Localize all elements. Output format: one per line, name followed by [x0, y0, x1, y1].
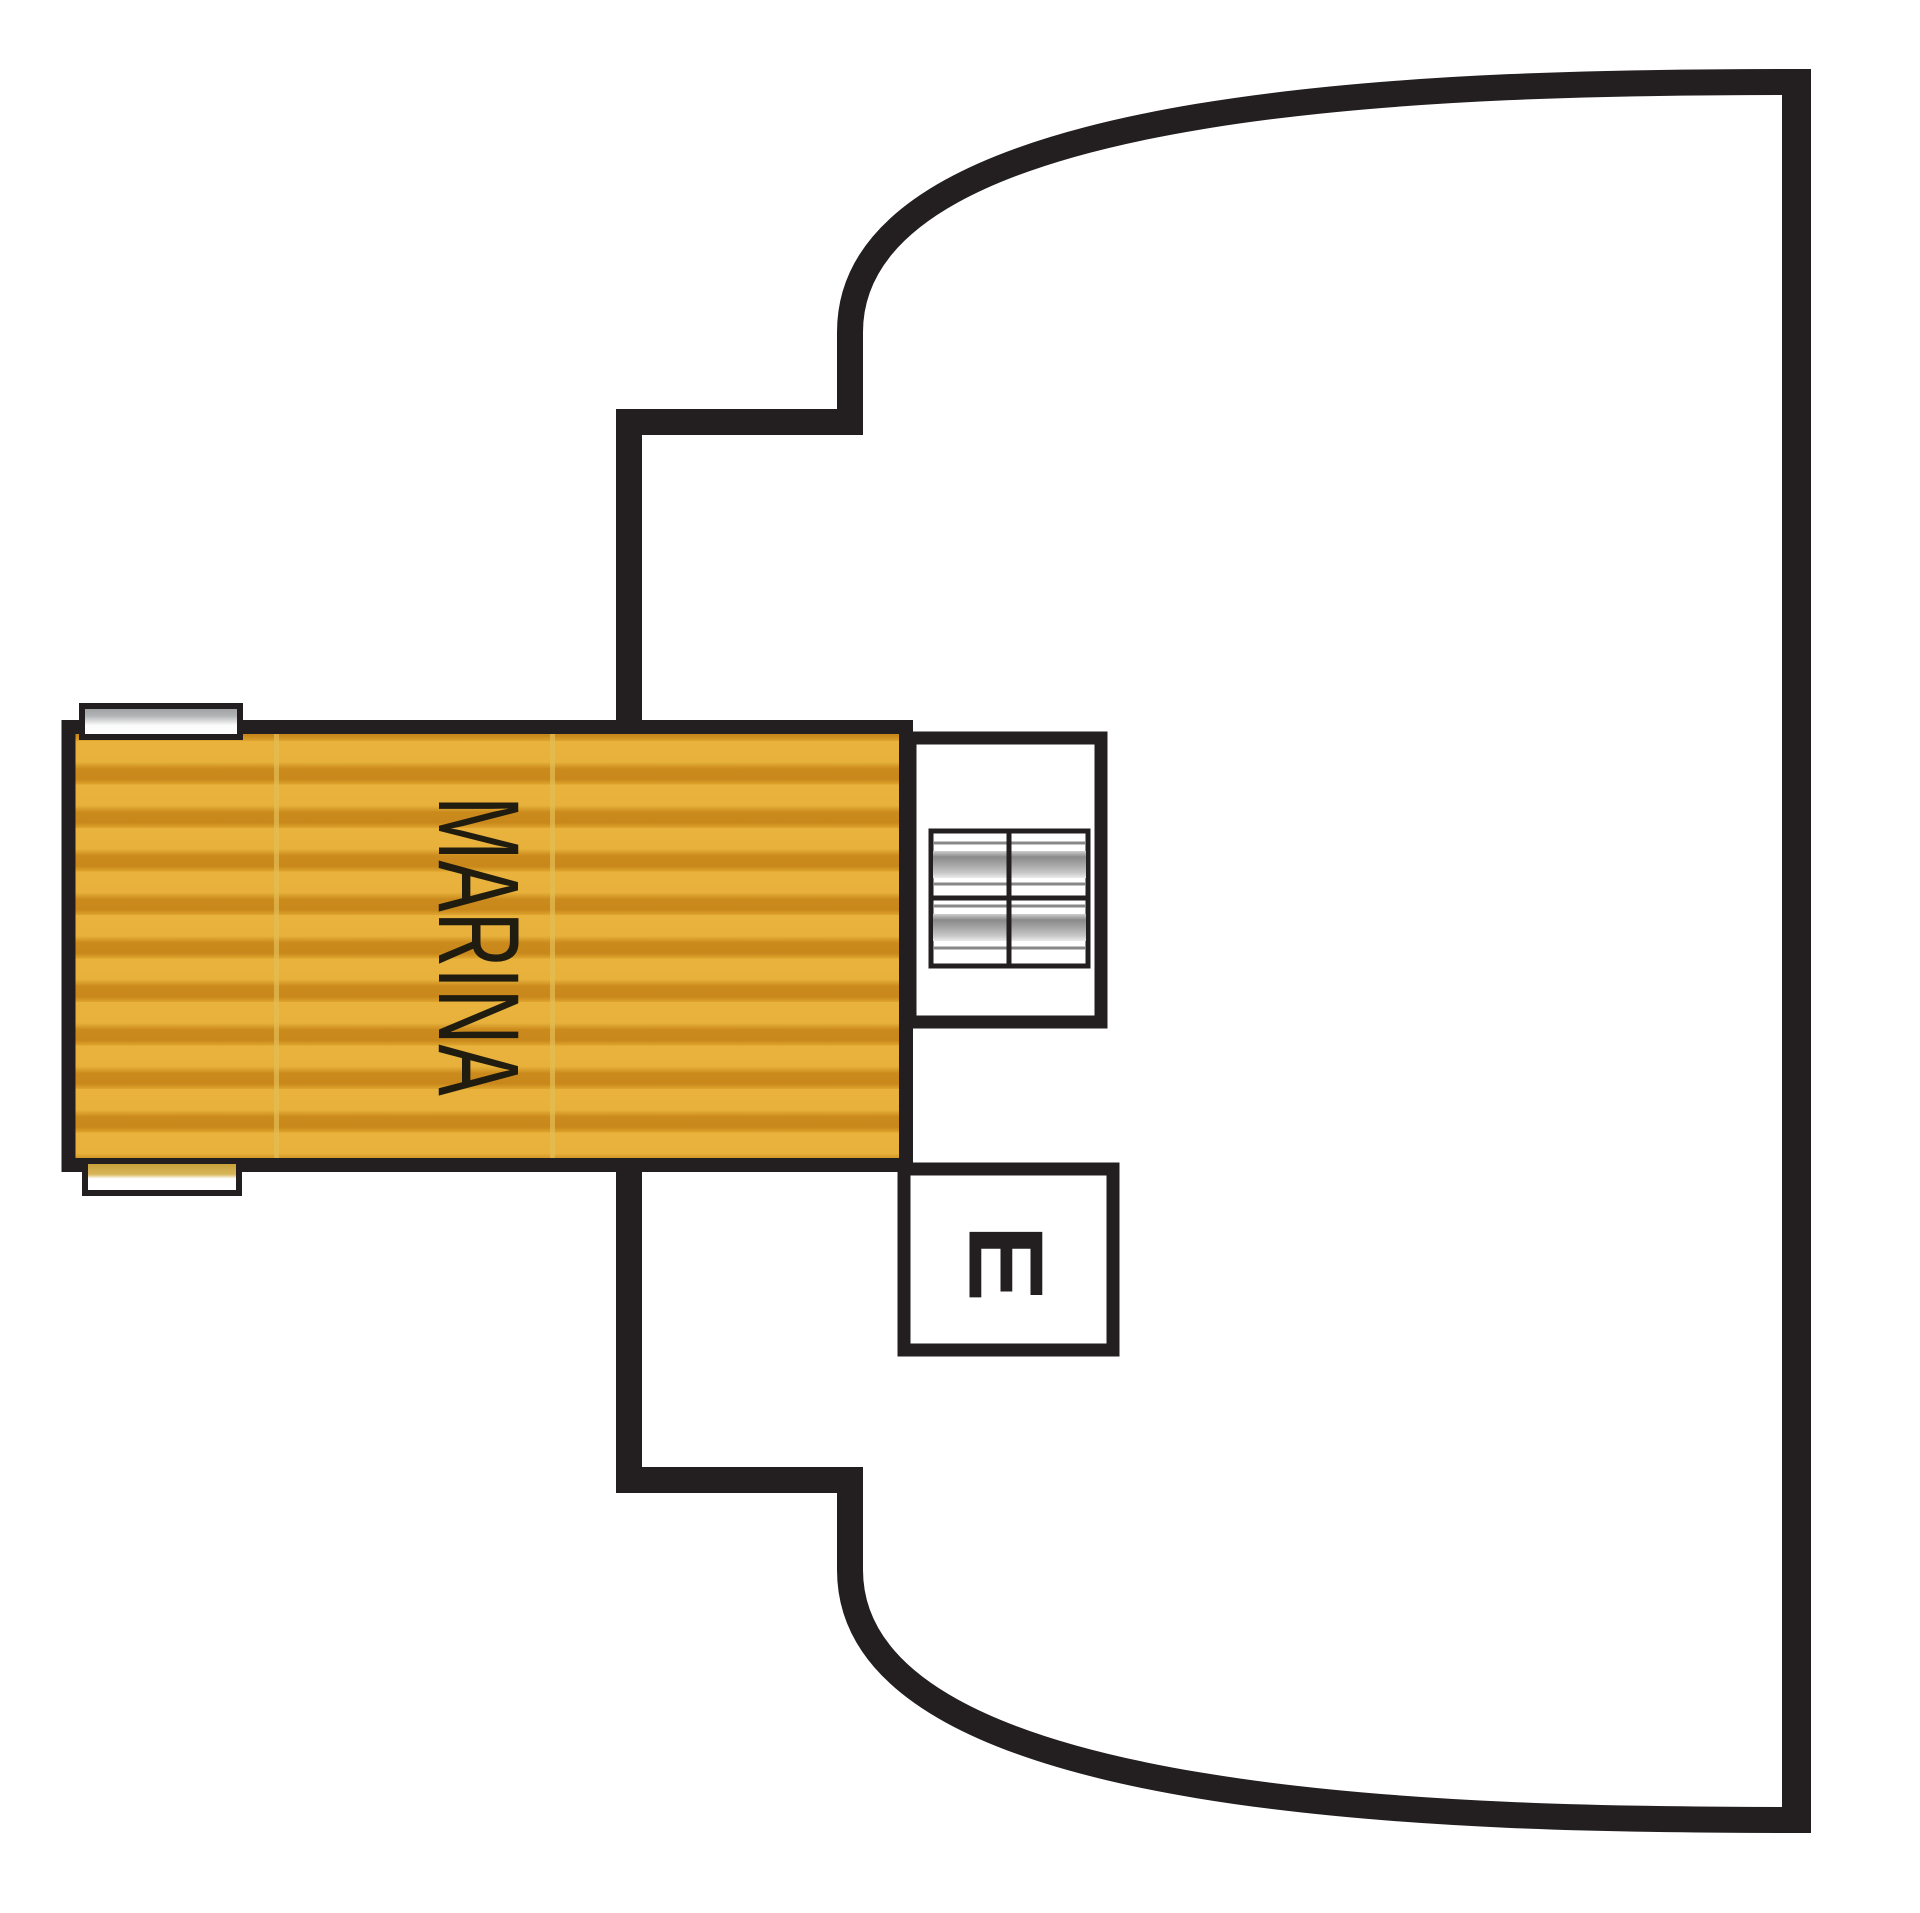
svg-text:MARINA: MARINA [414, 796, 543, 1096]
svg-text:E: E [947, 1224, 1066, 1302]
